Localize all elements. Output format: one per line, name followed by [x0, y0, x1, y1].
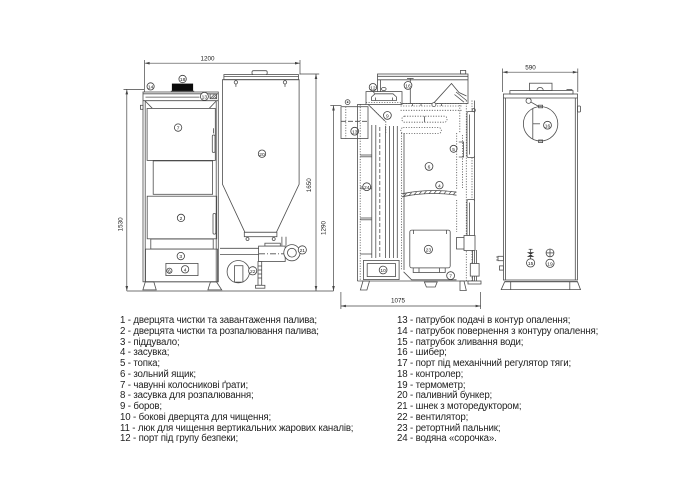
svg-text:18: 18	[180, 77, 186, 83]
svg-text:590: 590	[525, 64, 536, 71]
svg-text:15: 15	[528, 261, 534, 267]
svg-text:22: 22	[250, 269, 256, 275]
svg-text:7: 7	[177, 126, 180, 132]
svg-text:14: 14	[148, 85, 154, 91]
svg-text:6: 6	[168, 269, 171, 275]
svg-text:1650: 1650	[306, 178, 313, 193]
svg-text:5: 5	[452, 147, 455, 153]
svg-text:1200: 1200	[200, 56, 215, 63]
svg-text:9: 9	[386, 114, 389, 120]
svg-text:4: 4	[438, 183, 441, 189]
svg-text:1075: 1075	[391, 297, 406, 304]
svg-text:10: 10	[380, 268, 386, 274]
svg-text:13: 13	[202, 95, 208, 101]
svg-text:24: 24	[364, 185, 370, 191]
svg-text:23: 23	[426, 248, 432, 254]
svg-text:2: 2	[180, 216, 183, 222]
svg-text:19: 19	[547, 261, 553, 267]
svg-text:16: 16	[545, 123, 551, 129]
svg-text:3: 3	[179, 254, 182, 260]
svg-text:1530: 1530	[117, 217, 124, 232]
svg-text:21: 21	[300, 248, 306, 254]
svg-text:13: 13	[352, 129, 358, 135]
svg-text:1290: 1290	[320, 221, 327, 236]
svg-text:20: 20	[259, 152, 265, 158]
svg-text:6: 6	[428, 165, 431, 171]
svg-text:4: 4	[184, 267, 187, 273]
svg-text:12: 12	[370, 85, 376, 91]
svg-text:16: 16	[405, 84, 411, 90]
svg-text:7: 7	[449, 274, 452, 280]
